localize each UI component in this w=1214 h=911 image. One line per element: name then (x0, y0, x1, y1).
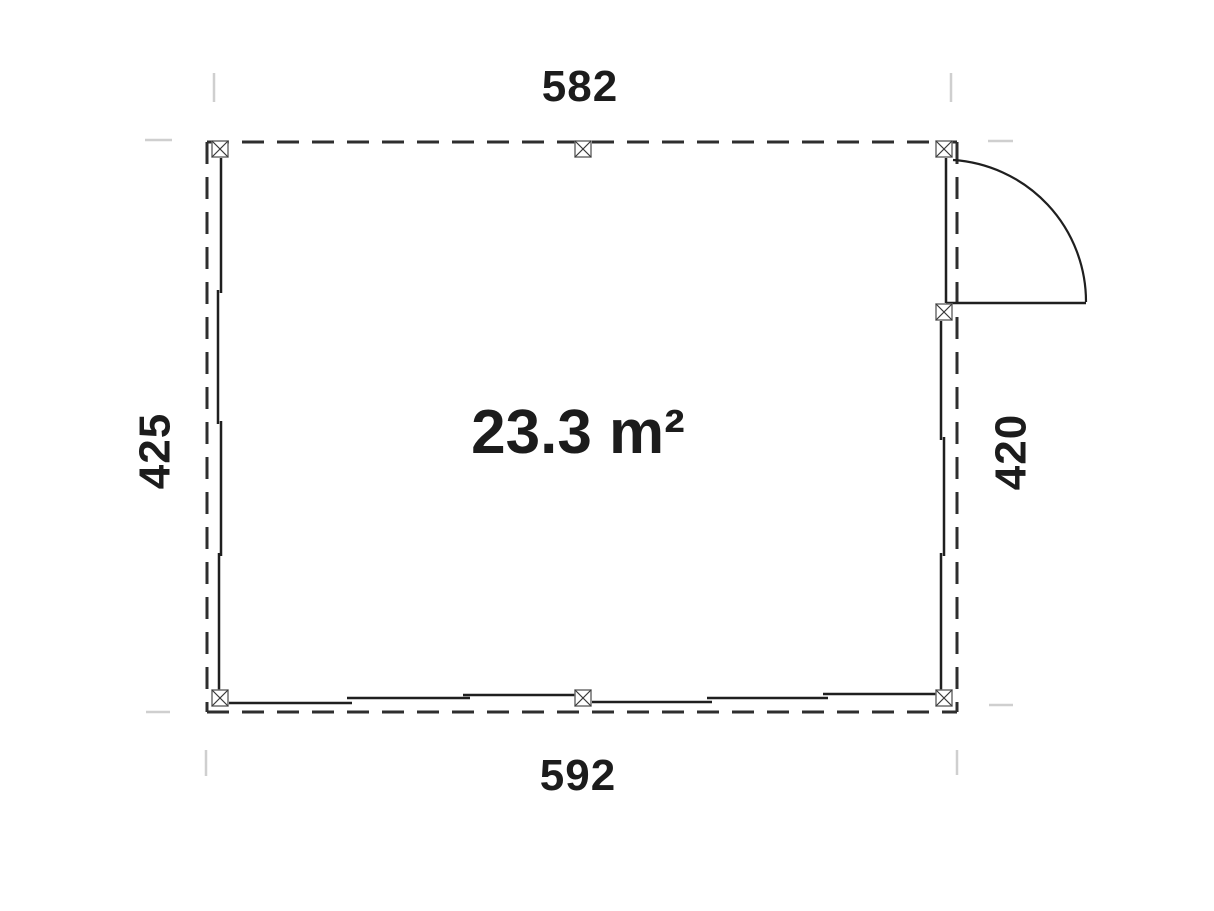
post-marker-door-bottom (936, 304, 952, 320)
post-marker-top-left (212, 141, 228, 157)
post-marker-bottom-right (936, 690, 952, 706)
door (946, 158, 1086, 303)
dimension-top-width: 582 (542, 62, 618, 111)
post-marker-bottom-left (212, 690, 228, 706)
post-marker-top-right (936, 141, 952, 157)
wall-right (941, 321, 944, 690)
floor-plan: 582 592 425 420 23.3 m² (0, 0, 1214, 911)
dimension-right-depth: 420 (987, 414, 1036, 490)
post-marker-top-middle (575, 141, 591, 157)
door-swing-arc (953, 160, 1086, 302)
area-label: 23.3 m² (471, 398, 685, 467)
wall-left (218, 158, 221, 690)
dimension-bottom-width: 592 (540, 751, 616, 800)
dimension-left-depth: 425 (131, 413, 180, 489)
post-marker-bottom-middle (575, 690, 591, 706)
